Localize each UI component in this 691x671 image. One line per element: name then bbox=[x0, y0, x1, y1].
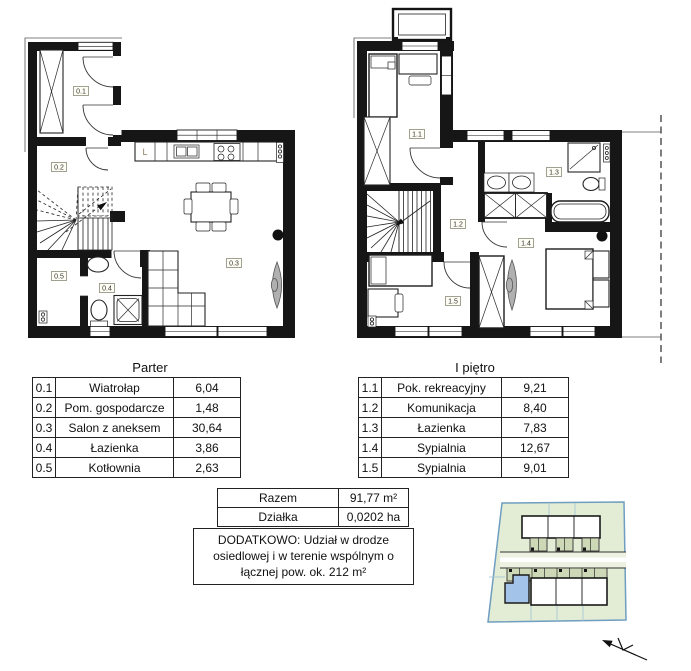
desk-room15 bbox=[368, 289, 403, 317]
table-row: 1.4Sypialnia12,67 bbox=[359, 438, 569, 458]
dining-set bbox=[184, 183, 238, 231]
stairs-up-arrow bbox=[97, 202, 107, 210]
cell-label: Działka bbox=[218, 508, 339, 527]
wardrobe-entry bbox=[40, 50, 63, 133]
chimney-parter bbox=[273, 230, 284, 241]
table-row: Razem91,77 m² bbox=[218, 489, 409, 508]
cell-name: Łazienka bbox=[382, 418, 502, 438]
cell-id: 1.1 bbox=[359, 378, 382, 398]
room11-door bbox=[410, 148, 440, 178]
cell-area: 3,86 bbox=[174, 438, 241, 458]
radiator-room15-icon bbox=[368, 316, 376, 327]
parter-area-table: 0.1Wiatrołap6,040.2Pom. gospodarcze1,480… bbox=[32, 377, 240, 478]
double-sink-icon bbox=[484, 173, 534, 192]
cell-area: 30,64 bbox=[174, 418, 241, 438]
cell-id: 1.4 bbox=[359, 438, 382, 458]
kitchen-window bbox=[177, 130, 237, 141]
svg-text:1.2: 1.2 bbox=[453, 222, 463, 229]
salon-window-2 bbox=[218, 327, 267, 337]
room-label-0-2: 0.2 bbox=[52, 163, 67, 172]
site-plan bbox=[488, 502, 647, 660]
kitchen-sink-icon bbox=[174, 145, 199, 158]
cell-name: Kotłownia bbox=[56, 458, 174, 478]
additional-note: DODATKOWO: Udział w drodze osiedlowej i … bbox=[193, 528, 414, 585]
bathroom-cabinet bbox=[484, 193, 547, 218]
room15-door bbox=[444, 262, 470, 288]
svg-text:1.4: 1.4 bbox=[521, 241, 531, 248]
cell-name: Salon z aneksem bbox=[56, 418, 174, 438]
cell-id: 0.2 bbox=[33, 398, 56, 418]
dormer-wall-window bbox=[402, 42, 438, 51]
bed-room15 bbox=[369, 255, 432, 286]
bathtub-icon bbox=[551, 201, 609, 222]
svg-text:0.5: 0.5 bbox=[54, 274, 64, 281]
cell-label: Razem bbox=[218, 489, 339, 508]
room-label-1-1: 1.1 bbox=[410, 130, 425, 139]
top-annexes bbox=[530, 538, 599, 551]
pietro-floor-plan: 1.1 1.2 1.3 1.4 1.5 bbox=[354, 9, 661, 363]
floor-plan-page: L bbox=[0, 0, 691, 671]
entrance-door bbox=[83, 57, 113, 87]
cell-area: 6,04 bbox=[174, 378, 241, 398]
corridor-window bbox=[467, 131, 504, 141]
salon-window-1 bbox=[165, 327, 217, 337]
storage-door bbox=[86, 148, 108, 170]
cell-name: Pom. gospodarcze bbox=[56, 398, 174, 418]
adjacent-unit-boundary bbox=[622, 115, 661, 363]
cell-name: Komunikacja bbox=[382, 398, 502, 418]
cell-id: 1.3 bbox=[359, 418, 382, 438]
cell-name: Pok. rekreacyjny bbox=[382, 378, 502, 398]
toilet-icon-pietro bbox=[583, 178, 605, 191]
cell-name: Wiatrołap bbox=[56, 378, 174, 398]
table-row: 0.4Łazienka3,86 bbox=[33, 438, 241, 458]
shower-icon bbox=[114, 296, 142, 325]
cell-id: 0.5 bbox=[33, 458, 56, 478]
cell-name: Sypialnia bbox=[382, 438, 502, 458]
summary-table: Razem91,77 m²Działka0,0202 ha bbox=[217, 488, 408, 527]
bathroom-window bbox=[90, 327, 110, 337]
north-arrow bbox=[602, 638, 647, 660]
plant-icon-salon bbox=[271, 262, 281, 308]
pietro-table-title: I piętro bbox=[371, 360, 579, 376]
radiator-boiler-icon bbox=[39, 311, 47, 323]
table-row: 1.5Sypialnia9,01 bbox=[359, 458, 569, 478]
stairs-pietro bbox=[367, 191, 431, 252]
cell-id: 1.2 bbox=[359, 398, 382, 418]
cell-area: 2,63 bbox=[174, 458, 241, 478]
cell-area: 12,67 bbox=[502, 438, 569, 458]
chimney-pietro bbox=[597, 231, 608, 242]
pietro-area-table: 1.1Pok. rekreacyjny9,211.2Komunikacja8,4… bbox=[358, 377, 568, 478]
cell-id: 0.4 bbox=[33, 438, 56, 458]
svg-text:0.2: 0.2 bbox=[54, 165, 64, 172]
cell-area: 1,48 bbox=[174, 398, 241, 418]
table-row: 1.1Pok. rekreacyjny9,21 bbox=[359, 378, 569, 398]
table-row: 0.1Wiatrołap6,04 bbox=[33, 378, 241, 398]
cell-name: Łazienka bbox=[56, 438, 174, 458]
room-label-0-5: 0.5 bbox=[52, 272, 67, 281]
table-row: 1.2Komunikacja8,40 bbox=[359, 398, 569, 418]
cell-value: 0,0202 ha bbox=[339, 508, 409, 527]
bed-room11 bbox=[369, 54, 397, 117]
parter-table-title: Parter bbox=[46, 360, 254, 376]
bathroom-door-pietro bbox=[482, 222, 507, 247]
svg-text:0.1: 0.1 bbox=[76, 89, 86, 96]
bed-room14 bbox=[546, 249, 609, 309]
table-row: 0.5Kotłownia2,63 bbox=[33, 458, 241, 478]
svg-text:0.3: 0.3 bbox=[229, 261, 239, 268]
access-road bbox=[500, 552, 626, 568]
fridge-label: L bbox=[142, 147, 147, 157]
cell-area: 9,01 bbox=[502, 458, 569, 478]
hall-door bbox=[83, 105, 113, 135]
bathroom-fixtures-pietro bbox=[484, 143, 610, 222]
bathroom-window-pietro bbox=[512, 131, 550, 141]
bottom-house-row bbox=[505, 568, 607, 605]
svg-text:0.4: 0.4 bbox=[102, 286, 112, 293]
stairs-parter bbox=[37, 187, 112, 250]
room-label-0-4: 0.4 bbox=[100, 284, 115, 293]
room-label-1-5: 1.5 bbox=[446, 297, 461, 306]
table-row: 1.3Łazienka7,83 bbox=[359, 418, 569, 438]
cell-name: Sypialnia bbox=[382, 458, 502, 478]
svg-text:1.1: 1.1 bbox=[412, 132, 422, 139]
cell-id: 0.1 bbox=[33, 378, 56, 398]
radiator-bathroom-icon bbox=[604, 144, 611, 162]
cell-area: 8,40 bbox=[502, 398, 569, 418]
svg-text:1.3: 1.3 bbox=[549, 170, 559, 177]
table-row: Działka0,0202 ha bbox=[218, 508, 409, 527]
wardrobe-room11 bbox=[364, 117, 390, 185]
top-house-row bbox=[522, 516, 600, 551]
room-label-1-2: 1.2 bbox=[451, 220, 466, 229]
parter-floor-plan: L bbox=[25, 38, 295, 338]
desk-room11 bbox=[399, 54, 437, 85]
sofa bbox=[148, 251, 205, 326]
cell-id: 1.5 bbox=[359, 458, 382, 478]
room-label-1-3: 1.3 bbox=[547, 168, 562, 177]
cell-value: 91,77 m² bbox=[339, 489, 409, 508]
entry-window bbox=[78, 42, 113, 50]
table-row: 0.2Pom. gospodarcze1,48 bbox=[33, 398, 241, 418]
room11-side-window bbox=[442, 56, 452, 95]
room-label-0-1: 0.1 bbox=[74, 87, 89, 96]
svg-text:1.5: 1.5 bbox=[448, 299, 458, 306]
table-row: 0.3Salon z aneksem30,64 bbox=[33, 418, 241, 438]
plant-icon-room14 bbox=[506, 260, 516, 310]
cell-area: 7,83 bbox=[502, 418, 569, 438]
radiator-kitchen-icon bbox=[277, 143, 284, 163]
wardrobe-room15 bbox=[479, 256, 504, 328]
dormer-window bbox=[393, 9, 451, 42]
room-label-0-3: 0.3 bbox=[227, 259, 242, 268]
shower-icon-pietro bbox=[568, 143, 600, 172]
cell-id: 0.3 bbox=[33, 418, 56, 438]
sink-icon bbox=[88, 257, 109, 272]
toilet-icon bbox=[91, 300, 108, 327]
cell-area: 9,21 bbox=[502, 378, 569, 398]
room-label-1-4: 1.4 bbox=[519, 239, 534, 248]
kitchen-counter: L bbox=[135, 142, 277, 161]
